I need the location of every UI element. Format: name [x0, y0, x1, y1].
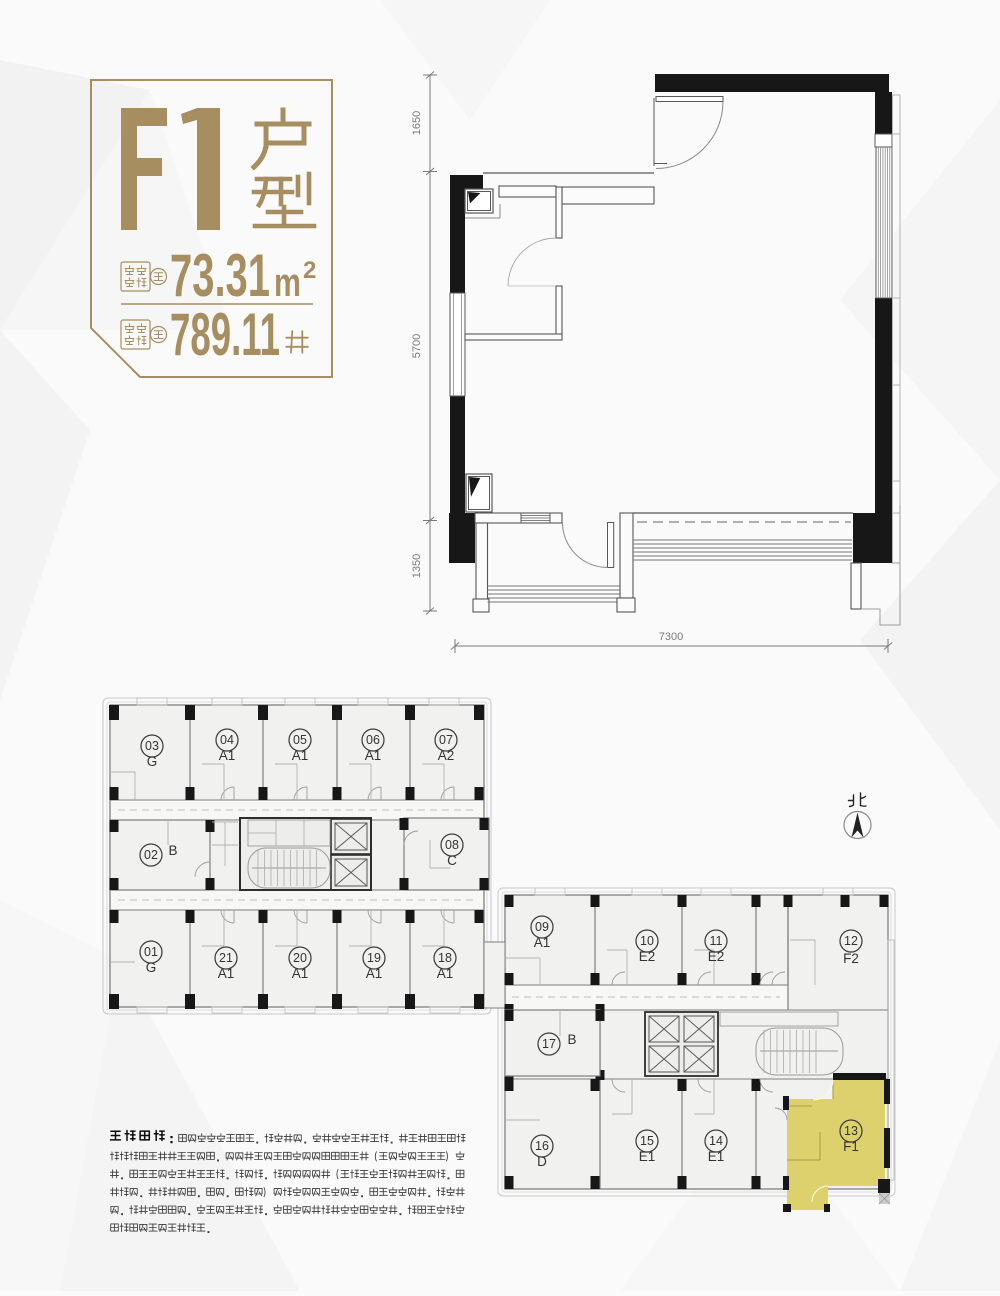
svg-text:18: 18: [438, 951, 452, 965]
svg-text:E1: E1: [639, 1149, 656, 1164]
svg-text:16: 16: [535, 1139, 549, 1153]
svg-text:20: 20: [293, 951, 307, 965]
svg-text:G: G: [146, 960, 157, 975]
svg-text:E1: E1: [708, 1149, 725, 1164]
svg-text:G: G: [147, 754, 158, 769]
svg-text:09: 09: [535, 920, 549, 934]
svg-text:7300: 7300: [659, 631, 683, 643]
svg-text:1650: 1650: [411, 111, 423, 135]
svg-text:08: 08: [445, 838, 459, 852]
svg-text:05: 05: [293, 733, 307, 747]
svg-text:E2: E2: [708, 949, 725, 964]
svg-text:5700: 5700: [411, 334, 423, 358]
svg-text:19: 19: [367, 951, 381, 965]
svg-text:A1: A1: [292, 966, 309, 981]
svg-text:07: 07: [439, 733, 453, 747]
svg-text:15: 15: [640, 1134, 654, 1148]
svg-text:2: 2: [303, 257, 316, 284]
svg-text:A1: A1: [366, 966, 383, 981]
svg-text:B: B: [567, 1032, 576, 1047]
svg-text:A1: A1: [292, 748, 309, 763]
svg-text:A1: A1: [534, 935, 551, 950]
svg-text:13: 13: [844, 1124, 858, 1138]
svg-text:04: 04: [220, 733, 234, 747]
svg-text:06: 06: [366, 733, 380, 747]
svg-text:A1: A1: [365, 748, 382, 763]
svg-text:1350: 1350: [411, 554, 423, 578]
svg-text:789.11: 789.11: [170, 301, 280, 368]
svg-text:03: 03: [145, 739, 159, 753]
svg-text:01: 01: [144, 945, 158, 959]
svg-text:A1: A1: [219, 748, 236, 763]
svg-text:10: 10: [640, 934, 654, 948]
svg-text:02: 02: [144, 848, 158, 862]
svg-text:12: 12: [844, 934, 858, 948]
svg-text:E2: E2: [639, 949, 656, 964]
svg-text:17: 17: [542, 1037, 556, 1051]
svg-text:B: B: [168, 843, 177, 858]
svg-text:21: 21: [219, 951, 233, 965]
svg-text:14: 14: [709, 1134, 723, 1148]
svg-text:C: C: [447, 853, 457, 868]
svg-text:A1: A1: [218, 966, 235, 981]
svg-text:F2: F2: [843, 951, 859, 966]
svg-text:D: D: [537, 1154, 547, 1169]
svg-text:11: 11: [710, 934, 723, 948]
svg-text:A1: A1: [437, 966, 454, 981]
svg-text:m: m: [274, 261, 301, 305]
svg-text:F1: F1: [843, 1139, 859, 1154]
svg-text:A2: A2: [438, 748, 455, 763]
svg-text:73.31: 73.31: [170, 242, 270, 309]
